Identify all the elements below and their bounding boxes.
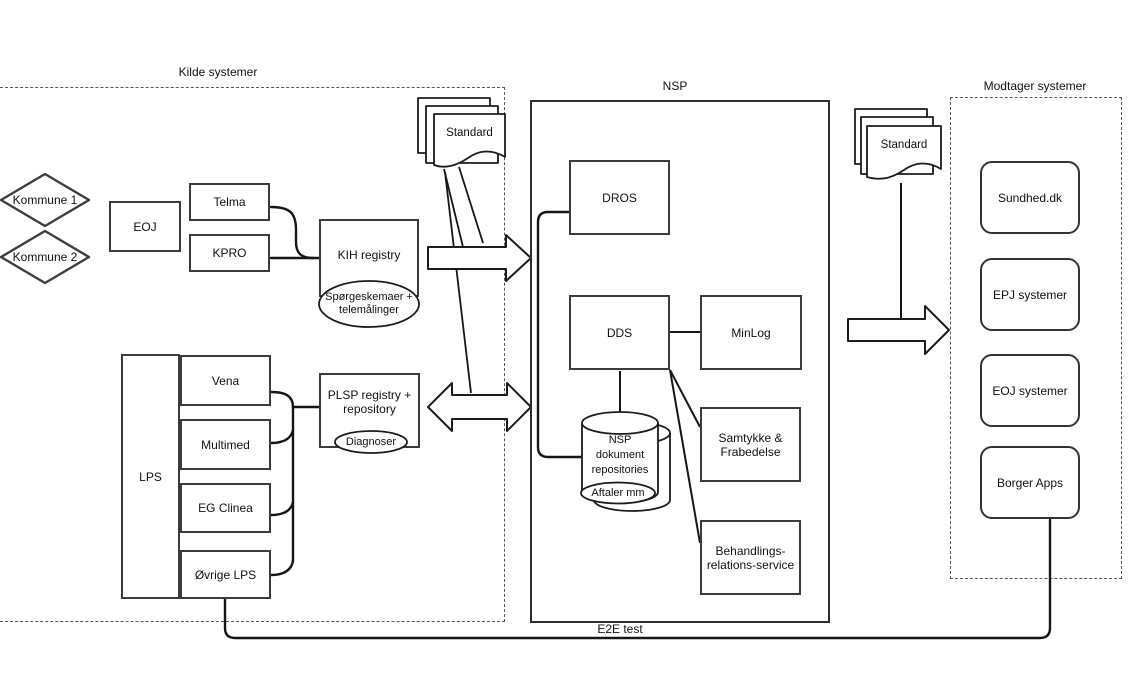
modtager-region-label: Modtager systemer xyxy=(960,79,1110,93)
node-ovrige-lps: Øvrige LPS xyxy=(180,550,271,599)
node-eoj-systemer: EOJ systemer xyxy=(980,354,1080,427)
standard-doc-left-label: Standard xyxy=(434,126,505,140)
repo-cylinder-label: NSP dokument repositories xyxy=(582,433,658,478)
arrow-nsp-to-modtager xyxy=(848,306,949,354)
node-dros: DROS xyxy=(569,160,670,235)
kommune1-label: Kommune 1 xyxy=(0,193,90,207)
node-behandlings-relations-service: Behandlings- relations-service xyxy=(700,520,801,595)
node-eoj: EOJ xyxy=(109,201,181,252)
node-multimed: Multimed xyxy=(180,419,271,470)
node-epj-systemer: EPJ systemer xyxy=(980,258,1080,331)
node-kih-registry: KIH registry xyxy=(319,219,419,297)
node-sundhed-dk: Sundhed.dk xyxy=(980,161,1080,234)
architecture-diagram: Kilde systemer NSP Modtager systemer E2E… xyxy=(0,0,1140,675)
kilde-region-label: Kilde systemer xyxy=(148,65,288,79)
kih-ellipse-label: Spørgeskemaer + telemålinger xyxy=(314,291,424,317)
kommune2-label: Kommune 2 xyxy=(0,250,90,264)
diagnoser-label: Diagnoser xyxy=(335,436,407,449)
node-vena: Vena xyxy=(180,355,271,406)
node-minlog: MinLog xyxy=(700,295,802,370)
node-samtykke-frabedelse: Samtykke & Frabedelse xyxy=(700,407,801,482)
node-eg-clinea: EG Clinea xyxy=(180,483,271,533)
node-kpro: KPRO xyxy=(189,234,270,272)
e2e-test-label: E2E test xyxy=(575,622,665,636)
standard-doc-right-label: Standard xyxy=(867,138,941,152)
node-telma: Telma xyxy=(189,183,270,221)
node-lps: LPS xyxy=(121,354,180,599)
aftaler-label: Aftaler mm xyxy=(581,487,655,500)
nsp-region-label: NSP xyxy=(625,79,725,93)
node-borger-apps: Borger Apps xyxy=(980,446,1080,519)
node-dds: DDS xyxy=(569,295,670,370)
